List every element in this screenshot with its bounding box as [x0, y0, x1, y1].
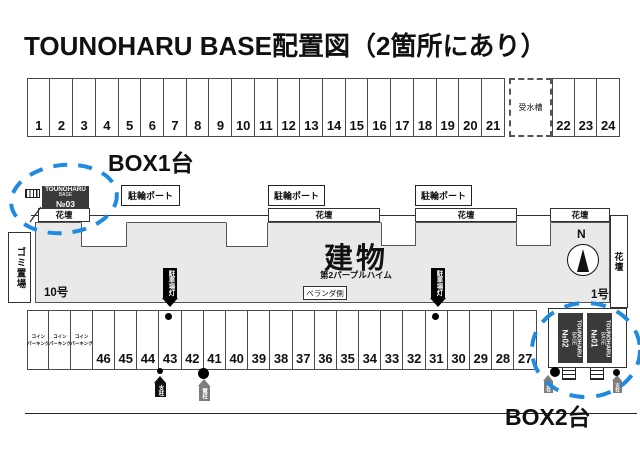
- parking-space: 40: [225, 310, 248, 370]
- unit-number-left: 10号: [44, 284, 68, 300]
- garbage-area: ゴミ置場: [8, 232, 31, 303]
- parking-space: 9: [208, 78, 232, 137]
- support-pole-dot: [613, 369, 620, 376]
- parking-space: 29: [469, 310, 492, 370]
- veranda-side-label: ベランダ側: [303, 286, 347, 300]
- support-pole-sign: 支柱: [155, 383, 166, 397]
- utility-pole-sign: 電柱: [199, 386, 210, 401]
- water-tank: 受水槽: [509, 78, 552, 137]
- parking-space: 20: [458, 78, 482, 137]
- parking-space: 42: [181, 310, 204, 370]
- support-pole-label: 支柱: [156, 385, 166, 396]
- coin-parking-label: コイン: [75, 334, 89, 339]
- top-parking-row-right: 222324: [553, 78, 620, 137]
- parking-space: 4: [95, 78, 119, 137]
- light-dot: [165, 313, 172, 320]
- parking-space: 11: [254, 78, 278, 137]
- building-subtitle: 第2パープルハイム: [266, 269, 446, 281]
- compass-icon: [567, 244, 599, 276]
- bottom-parking-row: コインパーキングコインパーキングコインパーキング4645444342414039…: [28, 310, 537, 370]
- parking-space: 33: [380, 310, 403, 370]
- arrow-up-icon: [154, 376, 166, 383]
- parking-space: 39: [247, 310, 270, 370]
- parking-space: 28: [491, 310, 514, 370]
- parking-space: 37: [292, 310, 315, 370]
- parking-space: 22: [552, 78, 576, 137]
- parking-space: 7: [163, 78, 187, 137]
- arrow-down-icon: [430, 298, 446, 307]
- parking-space: 34: [358, 310, 381, 370]
- parking-space: 24: [596, 78, 620, 137]
- compass-north-label: N: [577, 227, 586, 241]
- flower-bed-right-strip: 花壇: [610, 215, 628, 308]
- parking-space: 5: [118, 78, 142, 137]
- parking-space: 14: [322, 78, 346, 137]
- parking-space: 46: [92, 310, 115, 370]
- support-pole-sign: 支柱: [613, 381, 622, 393]
- parking-space: 13: [299, 78, 323, 137]
- storage-box-no01: TOUNOHARU BASE №01: [587, 313, 612, 363]
- page-title: TOUNOHARU BASE配置図（2箇所にあり）: [24, 26, 546, 63]
- parking-space: 35: [336, 310, 359, 370]
- flower-bed-1: 花壇: [38, 208, 90, 222]
- parking-space: 21: [481, 78, 505, 137]
- parking-space: 2: [49, 78, 73, 137]
- flower-bed-3: 花壇: [415, 208, 517, 222]
- coin-parking-space: コインパーキング: [70, 310, 93, 370]
- parking-space: 15: [345, 78, 369, 137]
- parking-space: 12: [277, 78, 301, 137]
- parking-space: 19: [436, 78, 460, 137]
- parking-space: 44: [136, 310, 159, 370]
- top-parking-row-left: 123456789101112131415161718192021: [28, 78, 505, 137]
- flower-bed-2: 花壇: [268, 208, 380, 222]
- parking-space: 36: [314, 310, 337, 370]
- utility-pole-label: 電柱: [199, 388, 209, 399]
- parking-light-label: 駐車場灯: [431, 270, 445, 296]
- bike-port-2: 駐輪ポート: [268, 185, 325, 206]
- storage-box-no02: TOUNOHARU BASE №02: [558, 313, 583, 363]
- utility-pole-dot: [198, 368, 209, 379]
- parking-space: 10: [231, 78, 255, 137]
- parking-space: 17: [390, 78, 414, 137]
- parking-light-sign-2: 駐車場灯: [431, 268, 445, 298]
- support-pole-dot: [157, 368, 163, 374]
- parking-space: 8: [186, 78, 210, 137]
- parking-space: 45: [114, 310, 137, 370]
- support-pole-label: 支柱: [614, 383, 622, 392]
- parking-space: 1: [27, 78, 51, 137]
- coin-parking-label: パーキング: [70, 341, 92, 346]
- parking-light-label: 駐車場灯: [163, 270, 177, 296]
- unit-number-right: 1号: [591, 286, 609, 302]
- box2-label: BOX2台: [505, 398, 591, 432]
- unit-number: №03: [56, 199, 75, 209]
- parking-space: 3: [72, 78, 96, 137]
- arrow-up-icon: [198, 379, 210, 386]
- parking-space: 18: [413, 78, 437, 137]
- bike-port-3: 駐輪ポート: [415, 185, 472, 206]
- coin-parking-label: パーキング: [49, 341, 71, 346]
- bike-port-1: 駐輪ポート: [121, 185, 180, 206]
- coin-parking-label: パーキング: [27, 341, 49, 346]
- parking-space: 30: [447, 310, 470, 370]
- parking-space: 38: [269, 310, 292, 370]
- building-notch: [226, 222, 268, 247]
- parking-space: 16: [367, 78, 391, 137]
- parking-space: 6: [140, 78, 164, 137]
- light-dot: [432, 313, 439, 320]
- parking-space: 27: [513, 310, 536, 370]
- unit-sub: BASE: [569, 331, 575, 344]
- building-notch: [516, 222, 551, 246]
- stairs-icon: [25, 189, 40, 198]
- unit-number: №01: [589, 329, 599, 347]
- coin-parking-label: コイン: [53, 334, 67, 339]
- building-outline: 建物 第2パープルハイム ベランダ側 10号 1号: [35, 222, 610, 303]
- utility-pole-dot: [550, 367, 560, 377]
- coin-parking-space: コインパーキング: [27, 310, 50, 370]
- utility-pole-label: 電柱: [545, 383, 553, 392]
- box1-label: BOX1台: [108, 144, 194, 178]
- arrow-down-icon: [162, 298, 178, 307]
- unit-sub: BASE: [598, 331, 604, 344]
- parking-light-sign-1: 駐車場灯: [163, 268, 177, 298]
- site-layout-diagram: TOUNOHARU BASE配置図（2箇所にあり） 12345678910111…: [0, 0, 640, 452]
- parking-space: 32: [402, 310, 425, 370]
- coin-parking-space: コインパーキング: [48, 310, 71, 370]
- utility-pole-sign: 電柱: [544, 381, 553, 393]
- parking-space: 23: [574, 78, 598, 137]
- coin-parking-label: コイン: [31, 334, 45, 339]
- parking-space: 41: [203, 310, 226, 370]
- flower-bed-4: 花壇: [550, 208, 610, 222]
- building-notch: [81, 222, 127, 247]
- unit-number: №02: [560, 329, 570, 347]
- storage-box-no03: TOUNOHARU BASE №03: [42, 186, 89, 209]
